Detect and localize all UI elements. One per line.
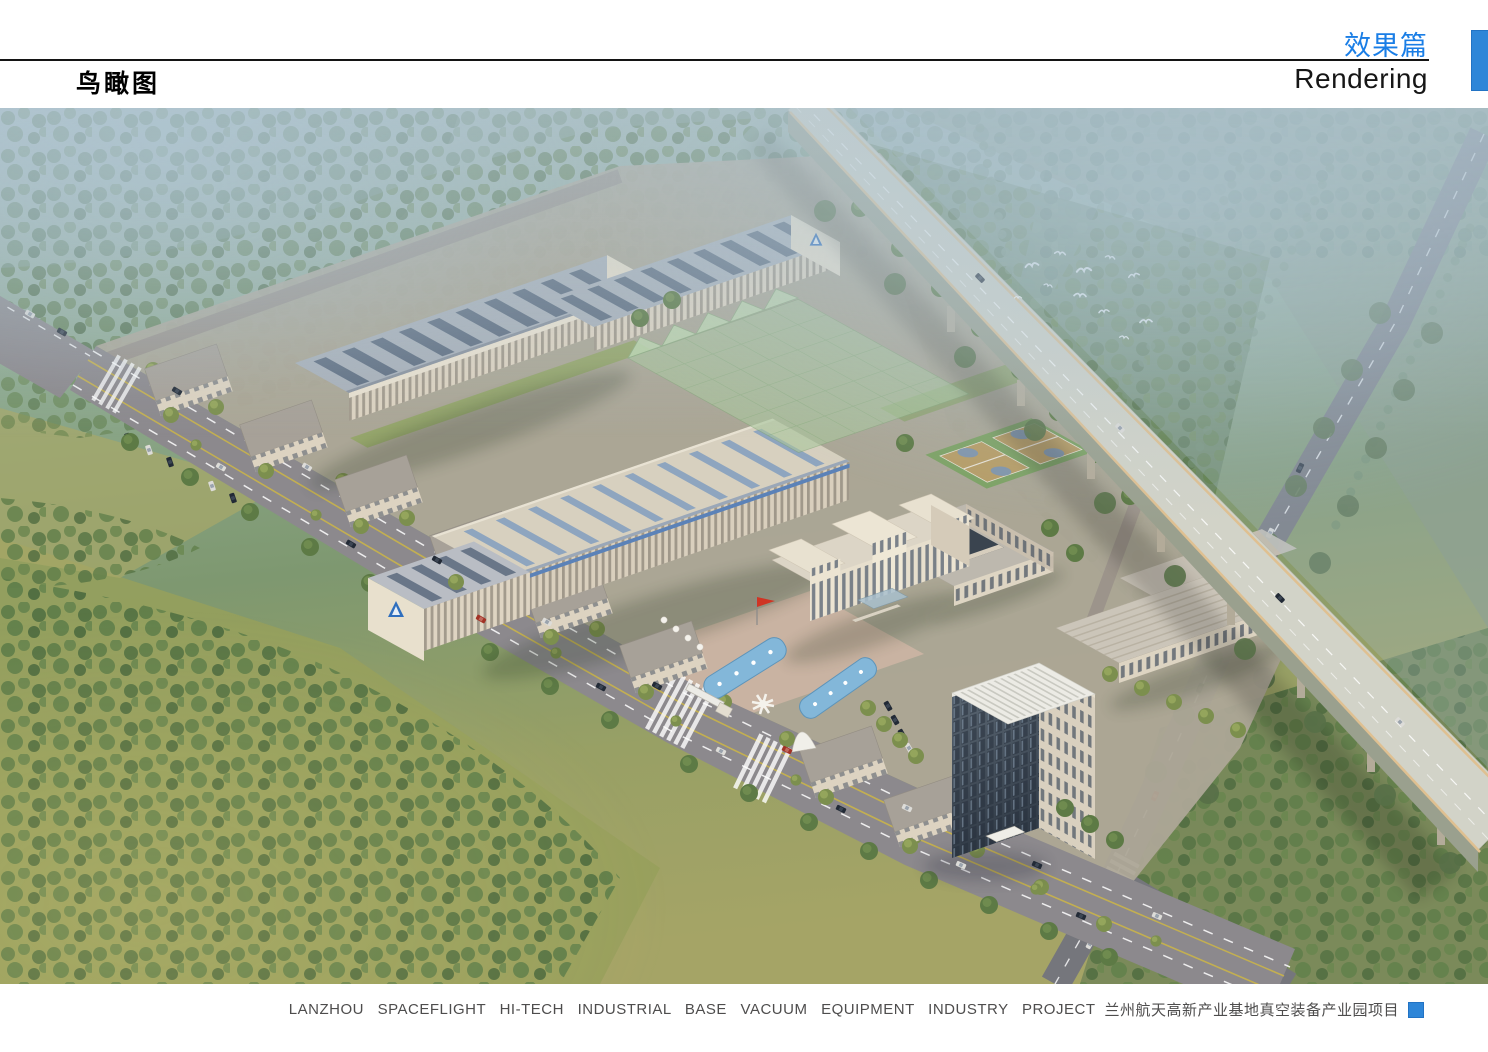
footer-marker [1408, 1002, 1424, 1018]
office-tower [952, 663, 1095, 859]
aerial-rendering [0, 108, 1488, 984]
page-title: 鸟瞰图 [76, 64, 160, 100]
section-title-en: Rendering [1294, 63, 1428, 95]
footer-caption: LANZHOU SPACEFLIGHT HI-TECH INDUSTRIAL B… [289, 999, 1424, 1020]
section-title-zh: 效果篇 [1344, 24, 1428, 63]
project-name-zh: 兰州航天高新产业基地真空装备产业园项目 [1104, 999, 1399, 1020]
corner-accent-tab [1471, 30, 1488, 91]
project-name-en: LANZHOU SPACEFLIGHT HI-TECH INDUSTRIAL B… [289, 1001, 1096, 1018]
header-divider-line [0, 59, 1429, 61]
rendering-image [0, 108, 1488, 984]
presentation-page: { "header": { "page_title": "鸟瞰图", "sect… [0, 0, 1488, 1052]
